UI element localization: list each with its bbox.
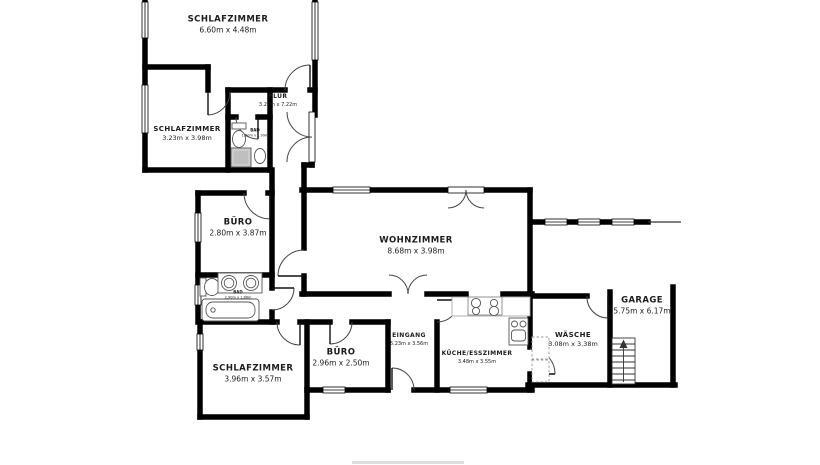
door-schlafzimmer-top (285, 65, 310, 90)
door-waesche (587, 296, 608, 318)
door-flur-wohnzimmer (278, 250, 304, 276)
window-garage-2 (578, 219, 600, 225)
door-buero-lower (330, 322, 352, 344)
shower-icon (231, 148, 251, 167)
window-buero-upper (195, 213, 201, 242)
stairs-icon (612, 338, 635, 384)
window-schlafzimmer-bottom (197, 334, 203, 350)
window-bedroom-top-left (142, 2, 148, 38)
window-wohnzimmer-top (333, 187, 370, 193)
door-flur-closet-2 (287, 137, 312, 162)
window-bedroom-left (142, 85, 148, 133)
door-buero-upper (244, 193, 270, 219)
bathtub-icon (202, 299, 259, 321)
door-bad-lower (272, 288, 294, 310)
window-buero-lower (323, 387, 345, 393)
toilet-lower-icon (200, 278, 220, 296)
floorplan-page: SCHLAFZIMMER 6.60m x 4.48m FLUR 3.27m x … (0, 0, 820, 465)
door-eingang-entry (392, 368, 414, 390)
washer-dryer-icons (532, 337, 549, 382)
fixtures (200, 123, 635, 384)
door-wohnzimmer-double-bottom (389, 275, 427, 294)
door-flur-closet-1 (287, 112, 312, 137)
window-bedroom-top-right (312, 2, 318, 60)
sink-upper-icon (255, 149, 266, 164)
window-garage-1 (545, 219, 567, 225)
walls (145, 2, 675, 417)
scale-bar-remnant (352, 461, 464, 464)
toilet-upper-icon (232, 123, 246, 148)
double-sink-icon (218, 273, 262, 293)
floorplan-drawing (0, 0, 820, 465)
kitchen-sink-icon (509, 318, 528, 345)
window-garage-3 (612, 219, 634, 225)
cooktop-icon (468, 297, 502, 316)
door-schlafzimmer-bottom (277, 322, 300, 345)
window-kueche-bottom (450, 387, 487, 393)
